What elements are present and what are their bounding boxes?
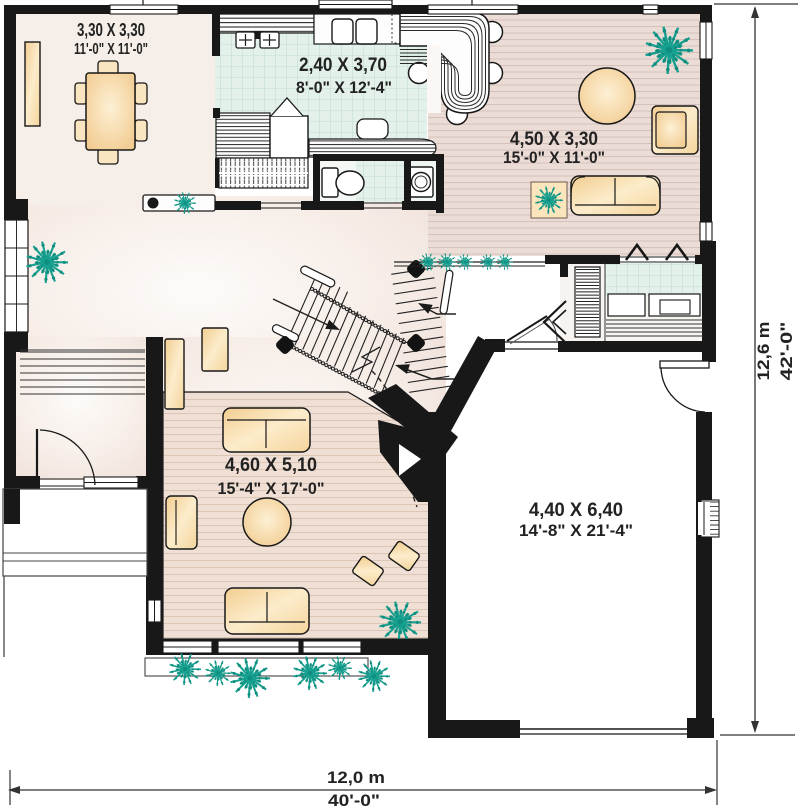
svg-text:3,30 X 3,30: 3,30 X 3,30 bbox=[77, 20, 145, 40]
svg-text:12,0 m: 12,0 m bbox=[327, 768, 385, 787]
svg-text:14'-8" X 21'-4": 14'-8" X 21'-4" bbox=[519, 521, 633, 540]
svg-text:8'-0" X 12'-4": 8'-0" X 12'-4" bbox=[296, 78, 392, 97]
svg-text:12,6 m: 12,6 m bbox=[754, 322, 773, 381]
svg-text:42'-0": 42'-0" bbox=[777, 322, 796, 381]
svg-text:2,40 X 3,70: 2,40 X 3,70 bbox=[299, 55, 387, 76]
svg-text:11'-0" X 11'-0": 11'-0" X 11'-0" bbox=[74, 41, 148, 58]
svg-text:4,40 X 6,40: 4,40 X 6,40 bbox=[529, 500, 623, 521]
svg-text:40'-0": 40'-0" bbox=[328, 791, 380, 810]
svg-text:4,60 X 5,10: 4,60 X 5,10 bbox=[225, 455, 317, 476]
svg-text:15'-4" X 17'-0": 15'-4" X 17'-0" bbox=[218, 479, 325, 498]
svg-text:4,50 X 3,30: 4,50 X 3,30 bbox=[510, 129, 598, 150]
svg-text:15'-0" X 11'-0": 15'-0" X 11'-0" bbox=[503, 148, 605, 167]
